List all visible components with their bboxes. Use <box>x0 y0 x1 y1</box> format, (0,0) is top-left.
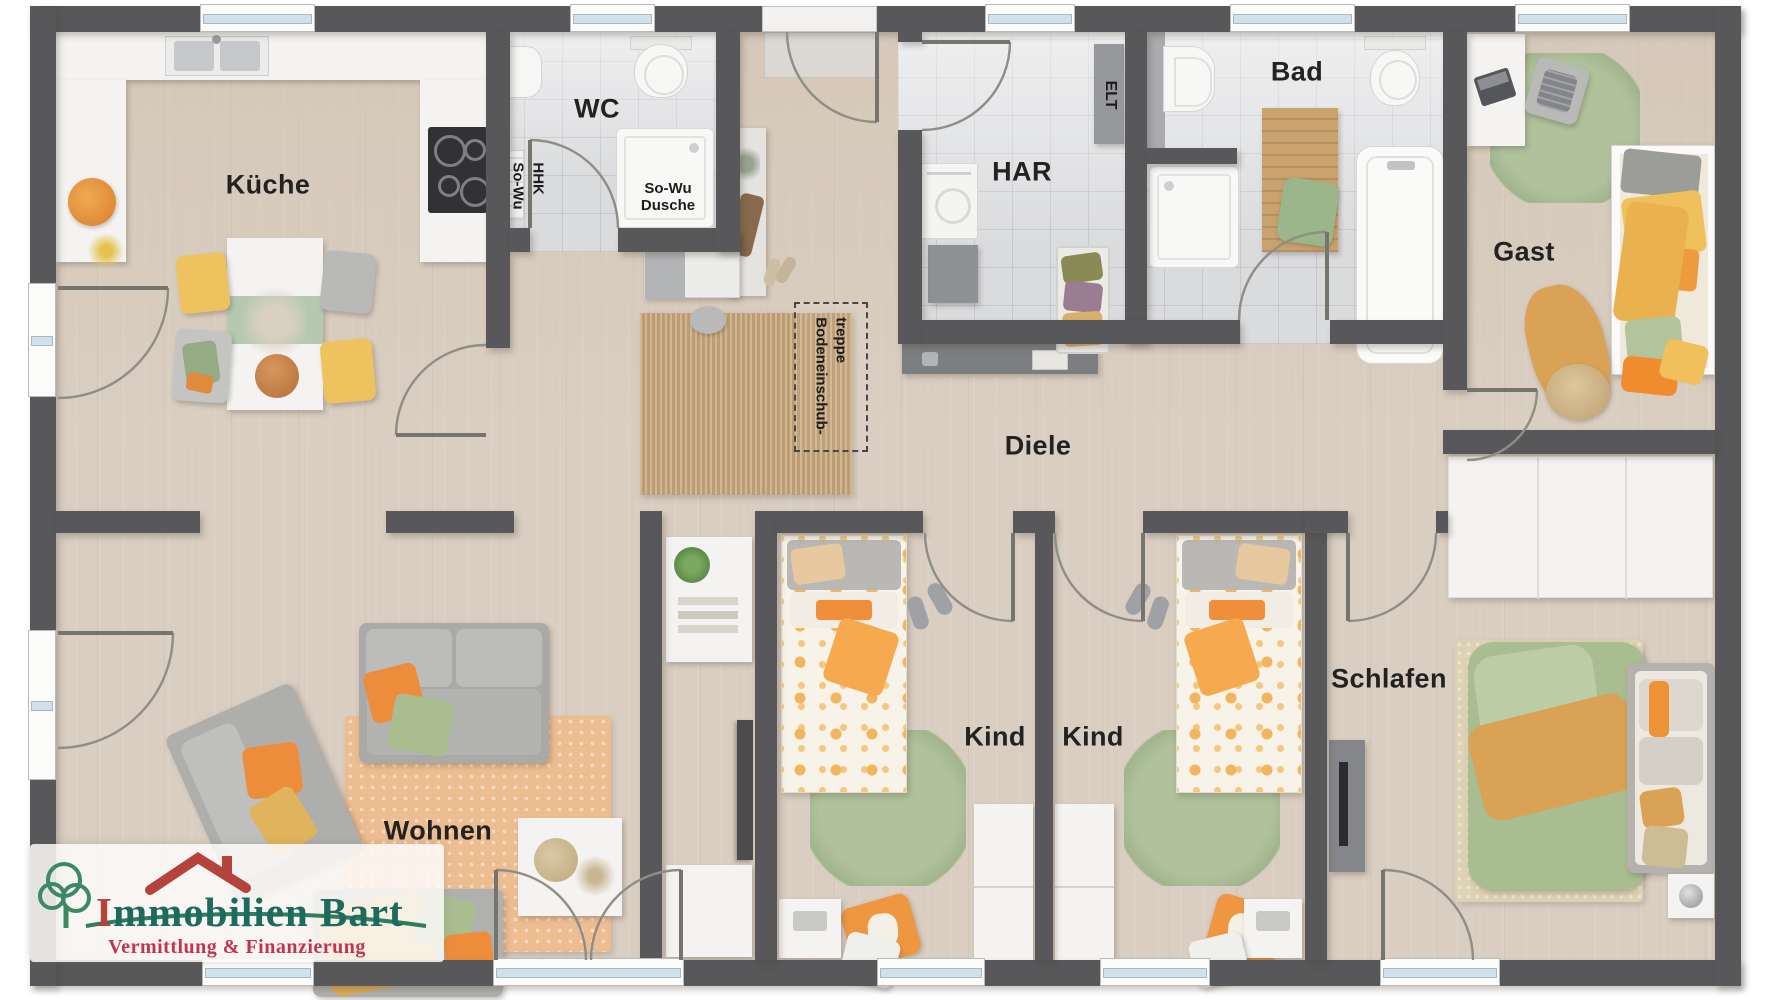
logo-tagline: Vermittlung & Finanzierung <box>30 936 444 959</box>
door-arc <box>922 42 1010 130</box>
door-arc <box>925 533 1013 621</box>
door-arc <box>1467 390 1537 460</box>
room-label-bad: Bad <box>1271 57 1323 88</box>
door-arc <box>591 870 681 960</box>
door-arc <box>787 32 877 122</box>
door-arc <box>1348 533 1436 621</box>
roof-icon <box>150 856 246 890</box>
room-label-wohnen: Wohnen <box>384 816 492 847</box>
room-label-wc: WC <box>574 94 620 125</box>
door-arc <box>1055 533 1143 621</box>
door-arc <box>496 870 586 960</box>
logo-name-rest: mmobilien Bart <box>113 889 404 935</box>
door-arc <box>1383 870 1473 960</box>
room-label-diele: Diele <box>1005 431 1072 462</box>
room-label-kueche: Küche <box>226 170 311 201</box>
room-label-kind1: Kind <box>964 722 1026 753</box>
door-arc <box>58 633 173 748</box>
door-arc <box>1239 232 1327 320</box>
room-label-kind2: Kind <box>1062 722 1124 753</box>
room-label-har: HAR <box>992 157 1052 188</box>
logo-initial: I <box>96 889 113 935</box>
tree-icon <box>40 864 89 928</box>
so-wu-dusche-label: So-Wu Dusche <box>641 180 695 215</box>
door-arc <box>396 345 486 435</box>
door-arc <box>58 288 168 398</box>
floor-plan: Bodeneinschub- treppe ELT <box>0 0 1778 1000</box>
so-wu-hhk-label: So-Wu HHK <box>507 162 548 209</box>
room-label-gast: Gast <box>1493 237 1555 268</box>
room-label-schlafen: Schlafen <box>1331 664 1447 695</box>
logo-name: Immobilien Bart <box>96 888 404 936</box>
logo: Immobilien Bart Vermittlung & Finanzieru… <box>30 844 444 962</box>
